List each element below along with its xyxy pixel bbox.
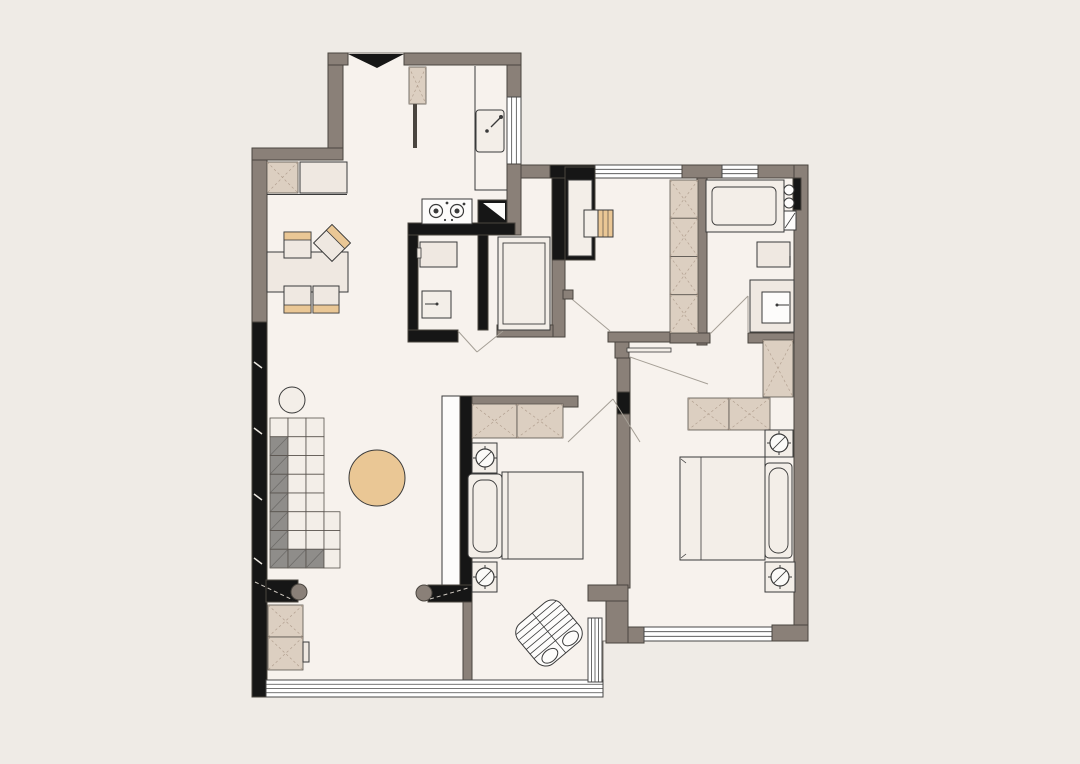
master-window [644, 627, 772, 641]
outer-wall-right [794, 165, 808, 641]
basin-bowl [784, 185, 794, 195]
bathtub [706, 180, 784, 232]
stove-knob [451, 219, 453, 221]
terrace-wall [588, 585, 628, 601]
door-jamb [563, 290, 573, 299]
bedroom2-wardrobe-cell [472, 404, 517, 438]
duct [793, 178, 801, 210]
shelf-unit-cell [306, 456, 324, 475]
shelf-unit-cell [288, 456, 306, 475]
shelf-unit-ext [324, 512, 340, 568]
dining-wall-top [252, 148, 343, 160]
master-wall-corner [772, 625, 808, 641]
bed-mattress [680, 457, 765, 560]
stove-knob [444, 219, 446, 221]
bedroom2-wardrobe-cell [517, 404, 563, 438]
bed-mattress [502, 472, 583, 559]
outer-wall-left [252, 160, 267, 324]
shelf-unit-cell [306, 512, 324, 531]
kitchen-wall-bottom [408, 223, 515, 235]
outer-wall-left-dark [252, 322, 267, 697]
chair-cushion [284, 232, 311, 240]
shelf-unit-cell [288, 418, 306, 437]
kitchen-wall-right [507, 65, 521, 98]
sideboard [300, 162, 347, 193]
balcony-cabinet-cell [268, 605, 303, 637]
shelf-unit-cell [288, 512, 306, 531]
stove-burner [455, 209, 460, 214]
kitchen-window [507, 97, 521, 164]
bath-vanity-tap [417, 248, 421, 258]
bath-wall-bottom [408, 330, 458, 342]
bedroom2-wardrobe-cell [517, 404, 563, 438]
toilet-flush-icon [436, 303, 439, 306]
kitchen-window-frame [507, 97, 521, 164]
floor-plan-svg [0, 0, 1080, 764]
shelf-unit [270, 418, 324, 568]
terrace-wall [606, 601, 628, 643]
balcony-cabinet-tab [303, 642, 309, 662]
shelf-unit-cell [306, 474, 324, 493]
entry-wall [328, 53, 348, 65]
stove-knob [446, 202, 449, 205]
study-wardrobe-cell [670, 257, 698, 295]
study-wardrobe-cell [670, 180, 698, 218]
side-table [279, 387, 305, 413]
floor-plan-image [0, 0, 1080, 764]
top-wall [682, 165, 722, 178]
entry-partition [413, 104, 417, 148]
balcony-partition-wall [463, 602, 472, 682]
bedroom2-wardrobe-cell [472, 404, 517, 438]
door-hinge [291, 584, 307, 600]
shelf-unit-ext-cell [324, 512, 340, 531]
bath2-cabinet [757, 242, 790, 267]
bath2-window [722, 165, 758, 178]
bath-wall-left [408, 235, 418, 330]
shelf-unit-cell [270, 418, 288, 437]
bedroom-divider-dark [617, 392, 630, 414]
balcony-window-bottom [266, 680, 603, 697]
basin-bowl [784, 198, 794, 208]
outer-wall-left-upper [328, 65, 343, 148]
study-window-frame [595, 165, 682, 178]
shelf-unit-cell [306, 418, 324, 437]
master-window-frame [644, 627, 772, 641]
toilet-flush-icon [776, 304, 779, 307]
master-wardrobe-cell [763, 340, 793, 397]
stove-knob [463, 203, 466, 206]
study-wardrobe-cell [670, 218, 698, 256]
terrace-wall [628, 627, 644, 643]
bath2-window-frame [722, 165, 758, 178]
chair-cushion [284, 305, 311, 313]
chair-cushion [313, 305, 339, 313]
bedroom2-door-wall [428, 585, 472, 602]
desk-chair [598, 210, 613, 237]
master-wardrobe-cell [688, 398, 729, 430]
shelf-unit-cell [288, 531, 306, 550]
study-wardrobe-cell [670, 295, 698, 333]
master-wardrobe-cell [729, 398, 770, 430]
shelf-unit-cell [306, 493, 324, 512]
shelf-unit-cell [306, 437, 324, 456]
shelf-unit-ext-cell [324, 531, 340, 550]
hall-wall-south [670, 333, 710, 343]
hall-wall-dark [552, 178, 565, 260]
shower-stall [498, 237, 550, 330]
shelf-unit-cell [288, 493, 306, 512]
bedroom2-pocket [442, 396, 460, 602]
sliding-door [627, 348, 671, 352]
shelf-unit-cell [288, 437, 306, 456]
shoe-cabinet-cell [409, 67, 426, 104]
balcony-window-right [588, 618, 602, 682]
door-hinge [416, 585, 432, 601]
sideboard-cell [267, 162, 298, 193]
shelf-unit-ext-cell [324, 549, 340, 568]
top-wall [521, 165, 551, 178]
bath-vanity [420, 242, 457, 267]
shelf-unit-cell [306, 531, 324, 550]
stove-burner [434, 209, 439, 214]
toilet [762, 292, 790, 323]
bath-wall-mid [478, 235, 488, 330]
entry-wall [404, 53, 521, 65]
sink-faucet-icon [499, 115, 503, 119]
round-rug [349, 450, 405, 506]
sink-drain [485, 129, 489, 133]
study-window [595, 165, 682, 178]
shelf-unit-cell [288, 474, 306, 493]
balcony-cabinet-cell [268, 637, 303, 670]
hall-wall-south [608, 332, 670, 342]
